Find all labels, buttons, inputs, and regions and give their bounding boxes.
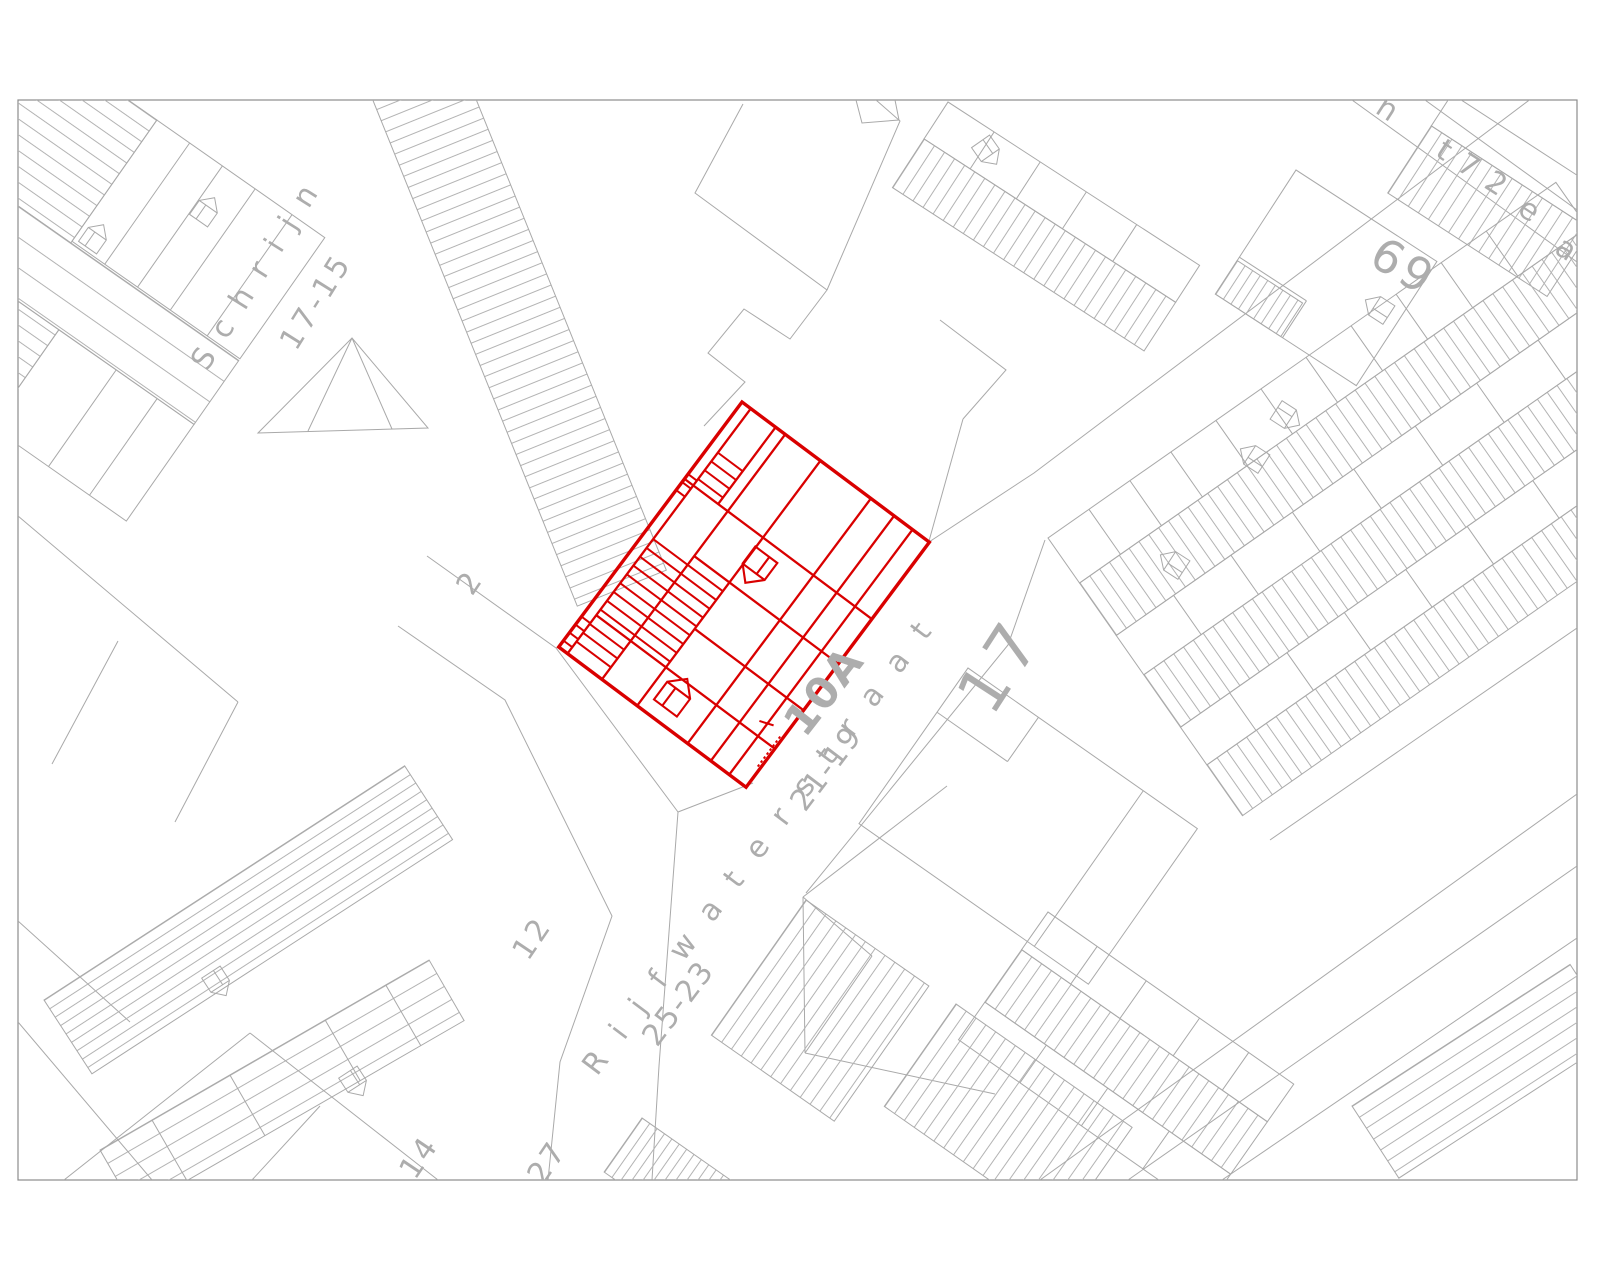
- house-gable-icon: [190, 191, 224, 227]
- map-label-num-17-15: 17-15: [273, 247, 359, 356]
- roof-triangle: [258, 338, 428, 433]
- cadastral-map: Schrijn17-152121427Rijfwaterstraat25-232…: [0, 0, 1600, 1280]
- map-label-num-69: 69: [1361, 226, 1446, 307]
- block-strip-schrijn: [372, 62, 666, 606]
- map-label-num-14: 14: [393, 1129, 447, 1185]
- block-bottom-right-corner: [1352, 964, 1600, 1178]
- building-stepped-outline: [695, 104, 827, 426]
- map-label-street-schrijn: Schrijn: [184, 164, 335, 376]
- cadastral-map-page: Schrijn17-152121427Rijfwaterstraat25-232…: [0, 0, 1600, 1280]
- map-label-street3-n: n: [1370, 89, 1405, 129]
- parcel-micro-annotation: [757, 737, 780, 768]
- map-label-num-17: 17: [943, 605, 1058, 727]
- house-gable-icon-red: [654, 670, 699, 716]
- block-17: [859, 668, 1197, 984]
- block-top-left: [0, 34, 325, 521]
- map-label-num-27: 27: [521, 1134, 575, 1190]
- block-top-right-strips: [892, 102, 1199, 351]
- map-label-num-12: 12: [506, 910, 560, 966]
